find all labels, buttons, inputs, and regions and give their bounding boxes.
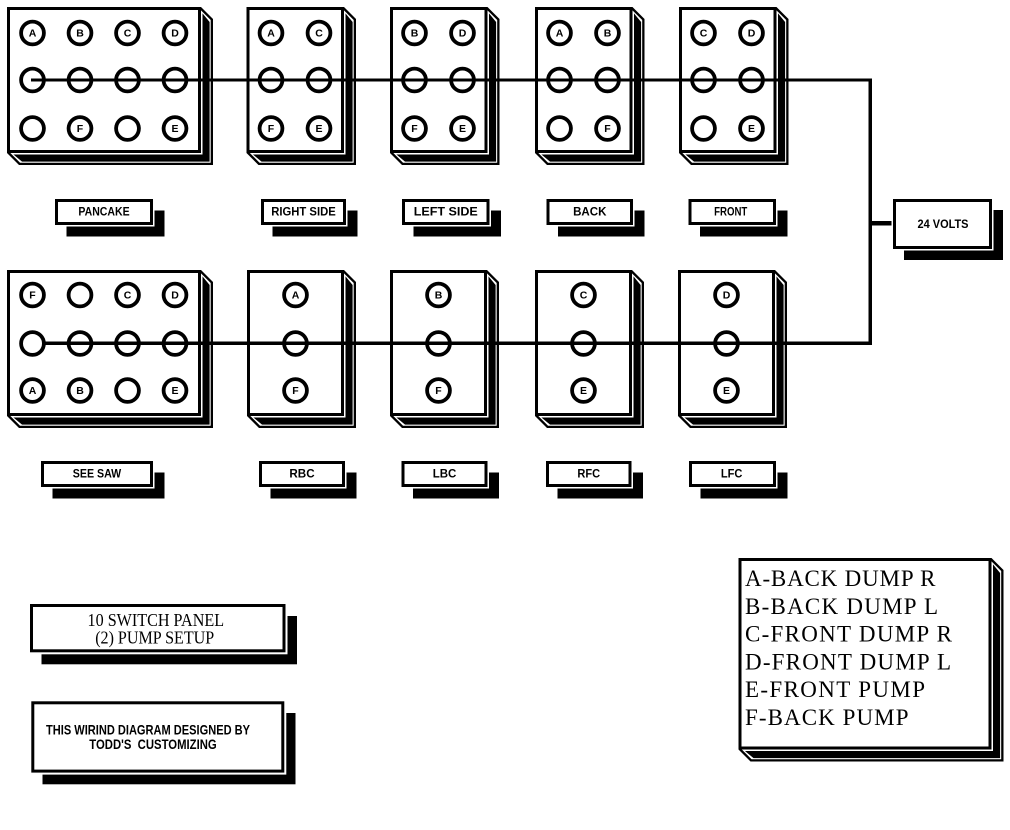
- svg-text:B: B: [76, 28, 84, 40]
- svg-text:C: C: [700, 28, 708, 40]
- svg-text:TODD'S CUSTOMIZING: TODD'S CUSTOMIZING: [89, 736, 216, 752]
- svg-text:D: D: [748, 28, 756, 40]
- svg-text:B-BACK DUMP L: B-BACK DUMP L: [745, 594, 938, 619]
- svg-text:24 VOLTS: 24 VOLTS: [918, 217, 969, 231]
- svg-text:FRONT: FRONT: [714, 205, 748, 219]
- svg-text:SEE SAW: SEE SAW: [73, 467, 122, 481]
- svg-text:F: F: [77, 123, 84, 135]
- svg-text:LFC: LFC: [721, 467, 743, 481]
- svg-text:E: E: [171, 123, 178, 135]
- svg-text:E: E: [171, 385, 178, 397]
- svg-text:F-BACK PUMP: F-BACK PUMP: [745, 705, 909, 730]
- svg-text:C: C: [124, 290, 132, 302]
- svg-text:PANCAKE: PANCAKE: [78, 205, 129, 219]
- svg-text:F: F: [268, 123, 275, 135]
- svg-text:F: F: [292, 385, 299, 397]
- svg-text:D: D: [723, 290, 731, 302]
- svg-text:B: B: [76, 385, 84, 397]
- svg-text:D: D: [171, 28, 179, 40]
- svg-text:E: E: [748, 123, 755, 135]
- svg-text:A-BACK DUMP R: A-BACK DUMP R: [745, 566, 936, 591]
- svg-text:C: C: [124, 28, 132, 40]
- svg-text:LEFT SIDE: LEFT SIDE: [414, 205, 478, 219]
- svg-text:LBC: LBC: [433, 467, 457, 481]
- svg-text:E: E: [315, 123, 322, 135]
- svg-text:C: C: [315, 28, 323, 40]
- svg-text:D: D: [171, 290, 179, 302]
- svg-text:RFC: RFC: [577, 467, 600, 481]
- svg-text:A: A: [267, 28, 275, 40]
- svg-text:E: E: [580, 385, 587, 397]
- svg-text:C-FRONT DUMP R: C-FRONT DUMP R: [745, 622, 953, 647]
- svg-text:A: A: [292, 290, 300, 302]
- svg-text:D: D: [459, 28, 467, 40]
- svg-text:E: E: [459, 123, 466, 135]
- svg-text:B: B: [604, 28, 612, 40]
- svg-text:A: A: [29, 385, 37, 397]
- svg-text:(2) PUMP SETUP: (2) PUMP SETUP: [95, 628, 214, 648]
- svg-text:RIGHT SIDE: RIGHT SIDE: [271, 205, 335, 219]
- svg-text:A: A: [556, 28, 564, 40]
- svg-text:F: F: [435, 385, 442, 397]
- svg-text:BACK: BACK: [573, 205, 607, 219]
- svg-text:F: F: [604, 123, 611, 135]
- svg-text:F: F: [411, 123, 418, 135]
- svg-text:F: F: [29, 290, 36, 302]
- svg-text:D-FRONT DUMP L: D-FRONT DUMP L: [745, 649, 951, 674]
- svg-text:RBC: RBC: [289, 467, 315, 481]
- svg-text:B: B: [435, 290, 443, 302]
- svg-text:E: E: [723, 385, 730, 397]
- svg-text:C: C: [580, 290, 588, 302]
- svg-text:A: A: [29, 28, 37, 40]
- svg-text:B: B: [411, 28, 419, 40]
